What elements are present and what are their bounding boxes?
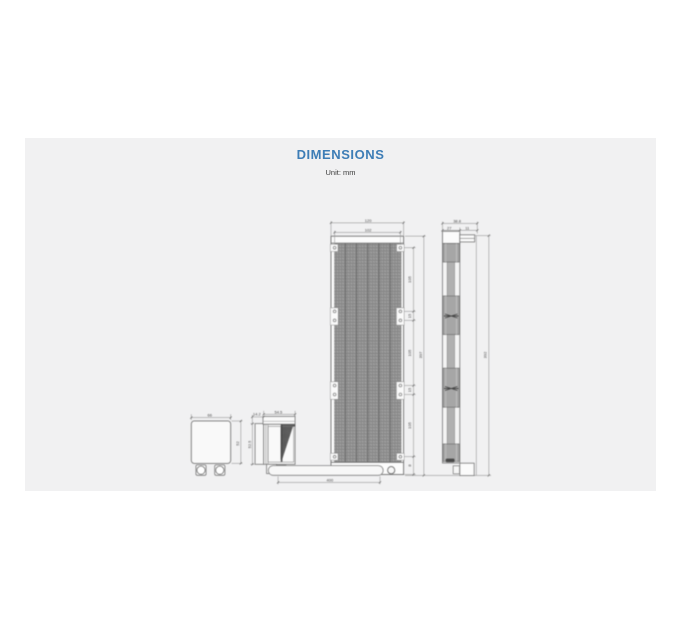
svg-text:102: 102 <box>365 228 372 233</box>
svg-text:52: 52 <box>235 441 240 446</box>
svg-text:52.5: 52.5 <box>247 440 252 449</box>
svg-text:392: 392 <box>483 351 488 358</box>
svg-text:105: 105 <box>407 275 412 282</box>
svg-text:8: 8 <box>407 464 412 467</box>
svg-text:54.5: 54.5 <box>275 409 284 414</box>
svg-text:38.8: 38.8 <box>453 218 462 223</box>
svg-text:27: 27 <box>447 225 452 230</box>
svg-text:11: 11 <box>465 225 470 230</box>
svg-text:15: 15 <box>407 313 412 318</box>
svg-text:66: 66 <box>208 413 213 418</box>
svg-text:400: 400 <box>327 477 334 482</box>
svg-text:15: 15 <box>407 387 412 392</box>
svg-text:105: 105 <box>407 421 412 428</box>
svg-text:105: 105 <box>407 349 412 356</box>
svg-text:397: 397 <box>418 351 423 358</box>
svg-text:14.2: 14.2 <box>253 411 262 416</box>
svg-text:120: 120 <box>365 218 372 223</box>
